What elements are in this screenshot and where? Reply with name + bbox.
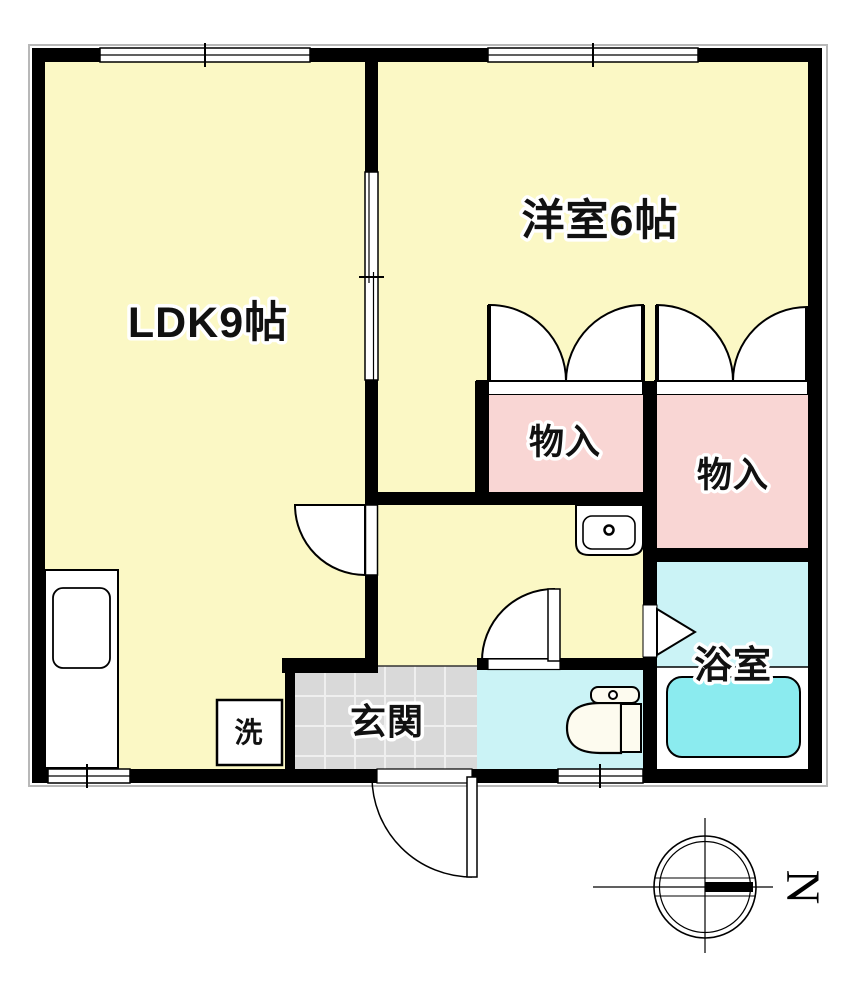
wall-divider-lower	[365, 575, 378, 660]
toilet-tank	[621, 704, 641, 752]
toilet-flush-button	[609, 691, 617, 699]
bathtub	[667, 677, 800, 757]
wall-entrance-left	[285, 670, 295, 770]
floorplan-drawing: LDK9帖 洋室6帖 物入 物入 玄関 浴室 洗 N	[0, 0, 855, 1000]
label-entrance: 玄関	[350, 701, 424, 742]
wall-hallway-top	[365, 492, 643, 505]
label-bathroom: 浴室	[694, 644, 772, 687]
bathroom-door-gap	[643, 605, 657, 657]
closet-front-tracks	[477, 381, 808, 395]
wall-divider-upper	[365, 62, 378, 172]
wall-closet-left-pier	[475, 381, 489, 505]
wall-mid-pier-lower	[643, 657, 657, 770]
toilet-door-leaf	[548, 589, 560, 661]
entrance-door-leaf	[467, 777, 477, 877]
toilet-bowl	[567, 703, 621, 753]
label-closet-left: 物入	[529, 423, 601, 462]
label-ldk: LDK9帖	[128, 299, 288, 347]
label-closet-right: 物入	[697, 456, 769, 495]
entrance-door-arc	[372, 777, 472, 877]
compass-needle	[705, 882, 753, 892]
kitchen-counter	[45, 570, 118, 768]
wall-divider-mid	[365, 380, 378, 505]
floorplan-page: LDK9帖 洋室6帖 物入 物入 玄関 浴室 洗 N	[0, 0, 855, 1000]
wall-left	[32, 48, 45, 783]
compass-north-label: N	[776, 870, 829, 905]
label-laundry: 洗	[234, 717, 263, 748]
entrance-threshold	[377, 769, 472, 783]
compass: N	[593, 818, 829, 953]
wall-entrance-top	[282, 658, 378, 673]
wall-mid-pier-upper	[643, 381, 657, 607]
wall-right	[808, 48, 822, 783]
ldk-door-leaf	[366, 505, 378, 575]
label-western-room: 洋室6帖	[522, 197, 679, 245]
kitchen-sink	[53, 588, 110, 668]
wall-bathroom-top	[643, 548, 808, 562]
washbasin	[576, 505, 643, 555]
